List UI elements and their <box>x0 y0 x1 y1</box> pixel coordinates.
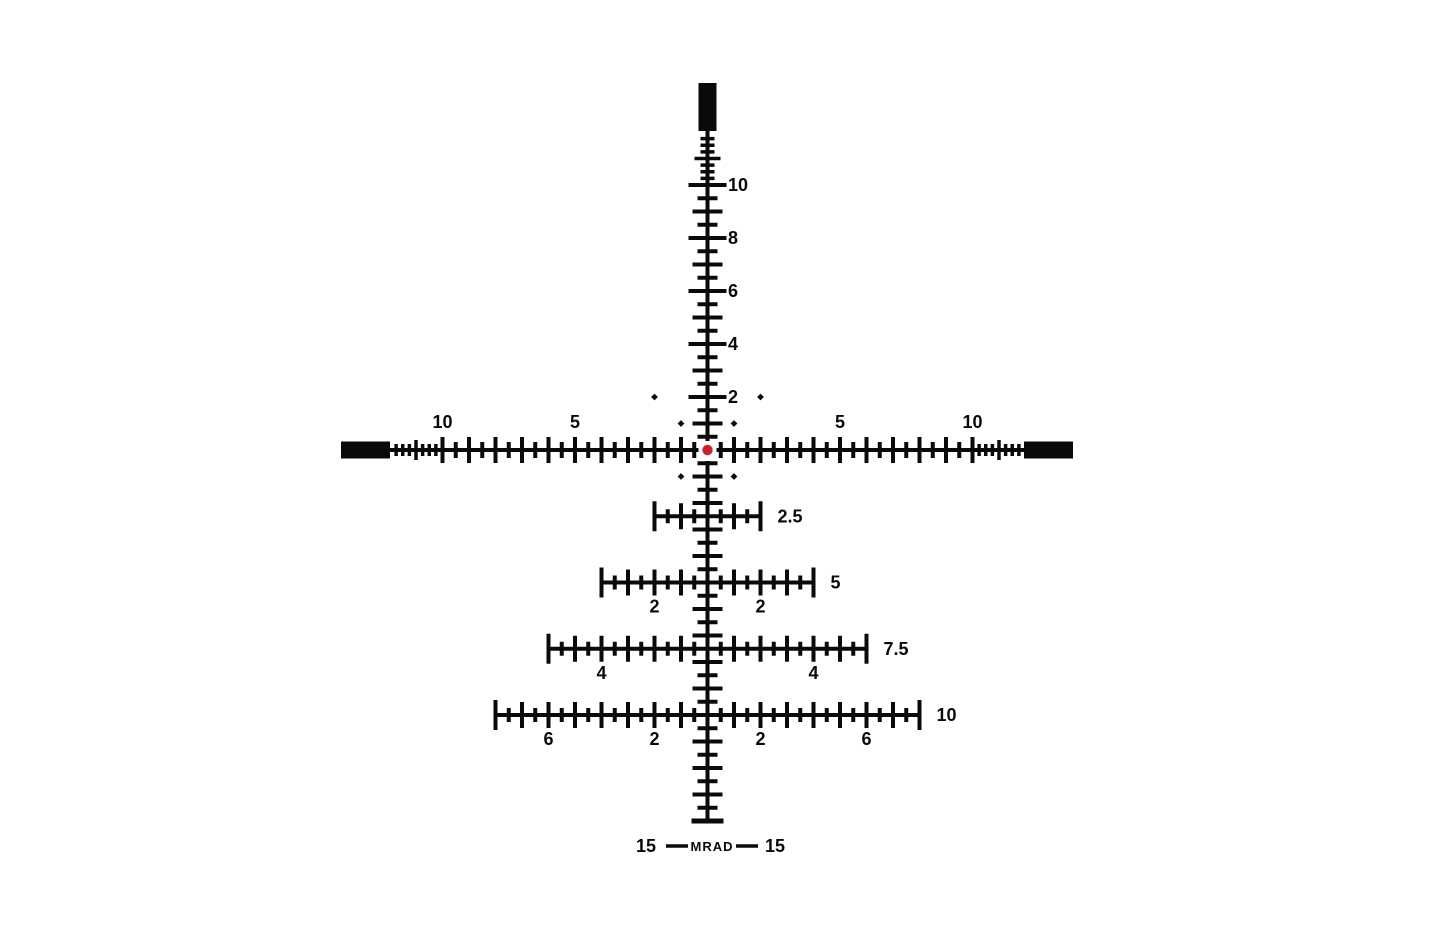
reference-dot <box>651 394 658 401</box>
windage-label: 5 <box>570 412 580 432</box>
reference-dot <box>731 473 738 480</box>
bottom-legend-right-value: 15 <box>765 836 785 856</box>
elevation-label: 10 <box>728 175 748 195</box>
holdover-bar-label: 5 <box>831 573 841 593</box>
reference-dot <box>678 473 685 480</box>
reference-dot <box>757 394 764 401</box>
elevation-label: 6 <box>728 281 738 301</box>
bottom-legend: 15 MRAD 15 <box>636 836 785 856</box>
holdover-sub-label: 2 <box>649 597 659 617</box>
holdover-sub-label: 6 <box>543 729 553 749</box>
reference-dot <box>731 420 738 427</box>
holdover-sub-label: 6 <box>861 729 871 749</box>
holdover-sub-label: 4 <box>596 663 606 683</box>
windage-label: 10 <box>432 412 452 432</box>
bottom-legend-left-value: 15 <box>636 836 656 856</box>
right-post <box>1024 442 1073 459</box>
holdover-bar-label: 7.5 <box>884 639 909 659</box>
holdover-bar-label: 2.5 <box>778 506 803 526</box>
windage-label: 5 <box>835 412 845 432</box>
elevation-label: 8 <box>728 228 738 248</box>
holdover-bar-label: 10 <box>937 705 957 725</box>
reference-dot <box>678 420 685 427</box>
reticle-diagram: 1086421055102.55227.544106226 15 MRAD 15 <box>0 0 1445 951</box>
windage-label: 10 <box>962 412 982 432</box>
holdover-sub-label: 2 <box>755 597 765 617</box>
elevation-label: 4 <box>728 334 738 354</box>
center-aiming-dot <box>702 445 712 455</box>
holdover-sub-label: 4 <box>808 663 818 683</box>
bottom-legend-unit-label: MRAD <box>691 839 734 854</box>
holdover-sub-label: 2 <box>649 729 659 749</box>
elevation-label: 2 <box>728 387 738 407</box>
top-post <box>699 83 717 131</box>
reticle-geometry: 1086421055102.55227.544106226 <box>341 83 1073 821</box>
reticle-view: 1086421055102.55227.544106226 15 MRAD 15 <box>0 0 1445 951</box>
holdover-sub-label: 2 <box>755 729 765 749</box>
left-post <box>341 442 390 459</box>
